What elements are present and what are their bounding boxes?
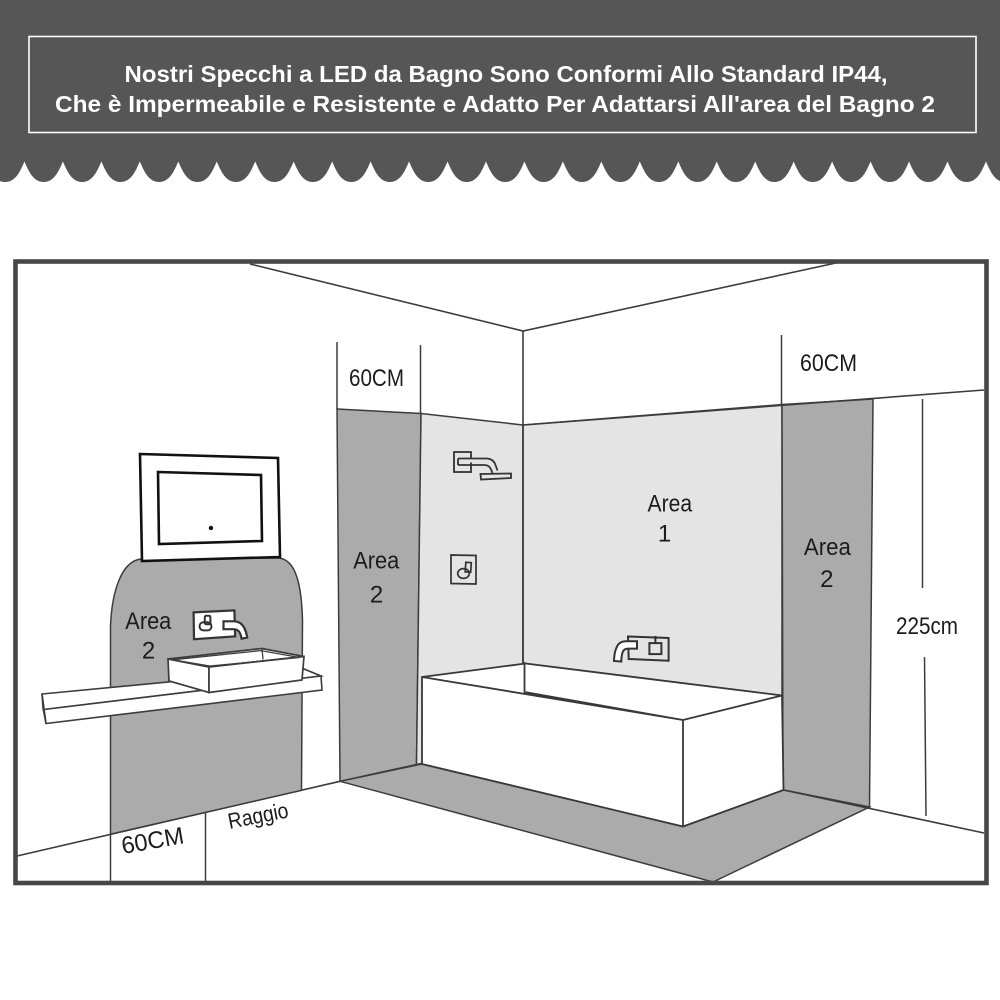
svg-text:1: 1 [658,521,671,548]
svg-text:Nostri Specchi a LED da Bagno: Nostri Specchi a LED da Bagno Sono Confo… [125,61,888,87]
svg-text:225cm: 225cm [896,613,958,640]
svg-text:Area: Area [353,548,400,575]
svg-text:60CM: 60CM [800,350,857,377]
svg-text:60CM: 60CM [349,365,404,392]
svg-text:2: 2 [370,582,383,609]
svg-text:2: 2 [820,566,833,593]
svg-text:Area: Area [804,534,852,561]
svg-text:Che è Impermeabile e Resistent: Che è Impermeabile e Resistente e Adatto… [55,91,935,117]
svg-text:Area: Area [648,490,693,517]
svg-text:Area: Area [125,608,172,635]
svg-text:2: 2 [142,638,155,665]
